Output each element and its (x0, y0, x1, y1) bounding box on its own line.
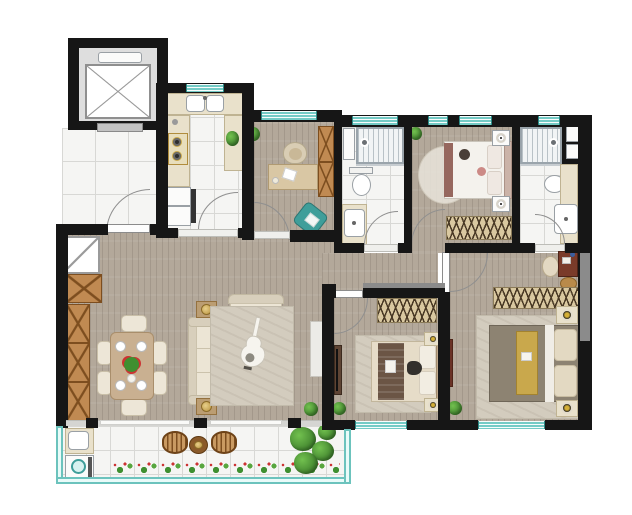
balcony-slider-post-1 (86, 418, 98, 428)
elevator-slot (98, 52, 142, 63)
outdoor-chair-2 (211, 431, 237, 454)
bathroom1-window (352, 116, 398, 125)
living-plant (304, 402, 318, 416)
bedroom-middle-wardrobe (377, 298, 437, 323)
master-bed-fold (545, 325, 554, 402)
bedroom-middle-bed-bow (407, 361, 422, 375)
master-lamp-1 (561, 309, 573, 321)
shoe-cabinet (66, 274, 102, 303)
bedroom-top-pillow-1 (487, 145, 502, 169)
bathroom2-window (538, 116, 560, 125)
study-window (261, 111, 317, 120)
bathroom1-faucet (352, 221, 356, 225)
bedroom-top-lamp-2 (496, 199, 506, 209)
washing-machine-door (71, 459, 86, 474)
wall-band-e (565, 243, 592, 253)
study-desk-plate (272, 177, 279, 184)
wall-kitchen-study (242, 83, 254, 240)
master-bed-runner (516, 331, 538, 395)
bathroom1-shower-head (360, 138, 369, 147)
storage-cabinet-1 (66, 304, 90, 343)
bedroom-top-bed-runner (444, 143, 453, 197)
bathroom1-threshold (364, 244, 398, 252)
master-plant (448, 401, 462, 415)
wall-bed-top-bath2 (512, 115, 520, 252)
outdoor-chair-1 (162, 431, 188, 454)
dining-chair-right-1 (152, 341, 167, 365)
master-pillow-2 (554, 365, 577, 397)
master-lamp-2 (561, 402, 573, 414)
bedroom-top-window-2 (459, 116, 492, 125)
bedroom-middle-lamp-1 (428, 334, 438, 344)
kitchen-window (186, 84, 224, 92)
wall-bed-middle-master (438, 292, 450, 428)
dining-dish (127, 374, 136, 383)
fridge-2 (166, 206, 191, 226)
bedroom-middle-pillow-2 (419, 371, 436, 395)
kitchen-plant (226, 131, 239, 146)
wall-east-gray (580, 253, 590, 341)
elevator-door (97, 123, 143, 132)
master-vanity-card (562, 257, 571, 264)
bathroom2-glass (520, 164, 562, 166)
dining-plate-4 (136, 380, 147, 391)
dining-chair-top (121, 315, 147, 332)
dining-centerpiece (124, 357, 139, 372)
master-vanity-desk (558, 251, 578, 277)
bedroom-middle-lamp-2 (428, 400, 438, 410)
kitchen-sink-2 (206, 95, 224, 112)
study-cabinet-2 (318, 162, 334, 197)
bedroom-top-bed-tray (459, 149, 470, 160)
kitchen-faucet (203, 96, 207, 100)
balcony-slider-post-2 (194, 418, 207, 428)
stove-burner-1 (172, 137, 182, 147)
elevator-cross (85, 64, 151, 119)
balcony-slider-glass-1 (100, 420, 190, 425)
wall-band-c (445, 243, 515, 253)
wall-master-bottom-b (545, 420, 592, 430)
balcony-railing-bottom (56, 477, 351, 484)
wall-living-bed-middle (322, 288, 334, 428)
wall-kitchen-bottom-a (156, 228, 178, 238)
dining-chair-bottom (121, 399, 147, 416)
bathroom1-glass (356, 164, 404, 166)
fridge (166, 187, 191, 206)
balcony-slider-glass-2 (210, 420, 282, 425)
bedroom-top-window-1 (428, 116, 448, 125)
wall-bathroom1-right (404, 115, 412, 252)
bathroom2-faucet (564, 217, 568, 221)
master-pillow-1 (554, 329, 577, 361)
storage-cabinet-3 (66, 382, 90, 421)
bathroom1-toilet-tank (349, 167, 373, 174)
study-threshold (254, 231, 290, 239)
outdoor-table-decor (194, 441, 203, 449)
bathroom1-cabinet (343, 128, 355, 160)
bedroom-top-pillow-2 (487, 171, 502, 195)
bedroom-middle-plant (333, 402, 346, 415)
bedroom-top-bench (446, 216, 512, 240)
kitchen-threshold (178, 229, 238, 237)
bedroom-top-bed-flower (477, 167, 486, 176)
dining-plate-3 (115, 380, 126, 391)
bathroom1-toilet (352, 174, 371, 196)
bedroom-middle-door (333, 290, 363, 298)
bathroom2-shower-head (549, 138, 558, 147)
wall-study-bottom (290, 230, 342, 242)
balcony-slider-post-3 (288, 418, 301, 428)
floor-plan (0, 0, 632, 515)
wall-master-bottom-a (445, 420, 478, 430)
bedroom-top-lamp-1 (496, 133, 506, 143)
master-window (478, 421, 545, 429)
bedroom-middle-tv (336, 349, 338, 391)
master-bed-card (521, 352, 532, 361)
balcony-railing-right (344, 429, 351, 484)
wall-west (56, 224, 68, 428)
dining-plate-2 (136, 341, 147, 352)
bedroom-middle-window (355, 421, 407, 429)
master-vanity-stool (542, 256, 559, 277)
wall-kitchen-bottom-b (238, 228, 254, 238)
wall-band-d (515, 243, 535, 253)
study-chair-seat (289, 148, 302, 160)
bedroom-top-headboard (504, 141, 512, 199)
wall-kitchen-left (156, 83, 168, 235)
stove-burner-2 (172, 151, 182, 161)
fridge-side (191, 189, 196, 223)
dining-chair-right-2 (152, 371, 167, 395)
balcony-bush-3 (294, 452, 318, 474)
wall-bed-middle-top (363, 288, 445, 298)
wall-bed-middle-bottom-b (407, 420, 445, 430)
washing-machine-panel (88, 457, 92, 477)
wall-band-a (334, 243, 364, 253)
wall-band-b (398, 243, 412, 253)
kitchen-utensil (172, 119, 178, 125)
storage-cabinet-2 (66, 343, 90, 382)
balcony-railing-left (56, 426, 63, 482)
study-cabinet-1 (318, 126, 334, 162)
dining-plate-1 (115, 341, 126, 352)
laundry-sink (68, 431, 89, 450)
bedroom-middle-bed-card (385, 360, 396, 373)
